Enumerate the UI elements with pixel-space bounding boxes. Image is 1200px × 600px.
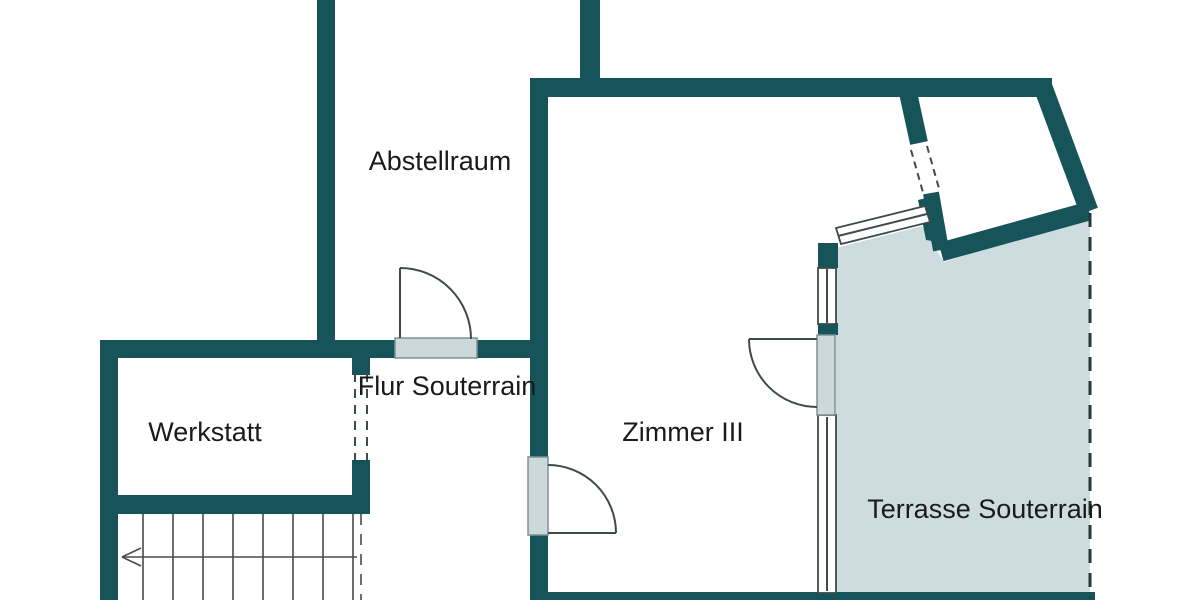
bay-window-dash-1 — [911, 150, 924, 196]
wall-abstellraum-left — [317, 0, 335, 358]
staircase — [122, 514, 361, 600]
door-terrace-threshold — [817, 335, 835, 415]
wall-flur-top-left — [100, 340, 395, 358]
wall-werkstatt-right-lower — [352, 460, 370, 514]
room-label-zimmer3: Zimmer III — [622, 417, 744, 447]
floor-plan-canvas: Abstellraum Flur Souterrain Werkstatt Zi… — [0, 0, 1200, 600]
terrace-area — [836, 216, 1090, 596]
bay-window-dash-2 — [927, 146, 940, 192]
room-label-flur: Flur Souterrain — [358, 371, 537, 401]
room-label-werkstatt: Werkstatt — [148, 417, 262, 447]
door-abstellraum — [395, 268, 477, 358]
wall-center-lower — [530, 535, 548, 600]
stair-direction-arrow — [122, 548, 357, 566]
wall-werkstatt-bottom — [100, 495, 370, 514]
room-label-terrasse: Terrasse Souterrain — [867, 494, 1103, 524]
door-flur-zimmer — [528, 457, 616, 535]
floor-plan: Abstellraum Flur Souterrain Werkstatt Zi… — [0, 0, 1200, 600]
door-terrace — [749, 335, 835, 415]
wall-bay-right — [1043, 87, 1089, 211]
door-flur-zimmer-threshold — [528, 457, 548, 535]
wall-bay-left-upper — [907, 88, 919, 143]
door-abstellraum-arc — [400, 268, 471, 339]
door-terrace-arc — [749, 339, 817, 407]
room-label-abstellraum: Abstellraum — [369, 146, 512, 176]
wall-terrace-post-top — [818, 243, 838, 268]
door-flur-zimmer-arc — [548, 465, 616, 533]
wall-outer-left — [100, 340, 118, 600]
door-abstellraum-threshold — [395, 338, 477, 358]
wall-zimmer-top — [530, 78, 1052, 97]
